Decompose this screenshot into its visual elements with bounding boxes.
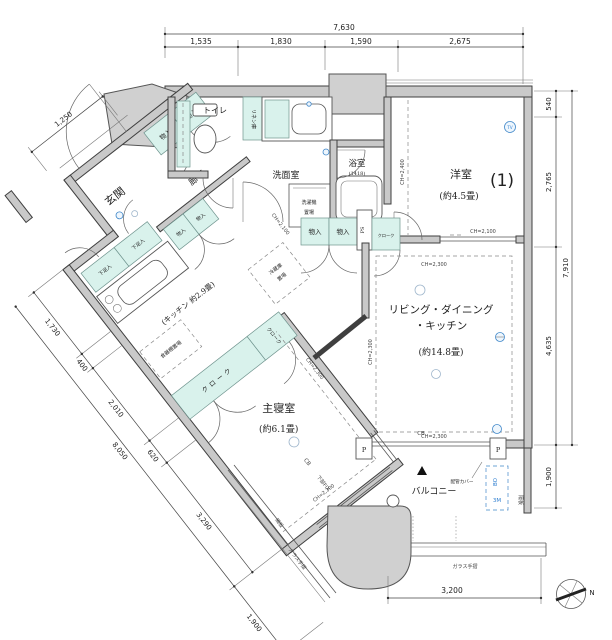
room-senmen-label: 洗面室 (272, 169, 299, 181)
label-washer-2: 置場 (304, 209, 314, 216)
label-bo: BO (493, 477, 499, 486)
floorplan-drawing: 7,630 1,535 1,830 1,590 2,675 540 2,765 … (0, 0, 612, 640)
outlet-icon-2 (493, 425, 502, 434)
room-linen-label: リネン庫 (250, 109, 257, 129)
ps-cloak-strip: 物入 物入 PS クローク (301, 210, 400, 276)
label-ch2100-yoshitsu: CH=2,100 (470, 229, 496, 235)
room-yoshitsu-size: (約4.5畳) (439, 190, 478, 202)
dim-top-2: 1,830 (270, 37, 292, 46)
label-ch2100-kitchen: CH=2,100 (270, 212, 291, 236)
dim-bottom: 3,200 (441, 586, 463, 595)
room-toilet-label: トイレ (203, 106, 227, 115)
room-kitchen: (キッチン 約2.9畳) (159, 279, 217, 327)
room-yoshitsu-number: (1) (490, 171, 514, 191)
compass: N (556, 580, 595, 609)
label-glass-rail-1: ガラス手摺 (453, 563, 478, 570)
room-ldk-label2: ・キッチン (415, 320, 468, 332)
dim-left-total: 8,050 (110, 441, 129, 462)
compass-north: N (589, 589, 594, 597)
room-ldk: CH=2,300 CH=2,300 CH=2,300 リビング・ダイニング ・キ… (314, 243, 524, 475)
shower-icon (323, 149, 329, 155)
planter-hook (387, 495, 399, 507)
label-ch2300-ldk-bottom: CH=2,300 (421, 434, 447, 440)
room-ldk-label1: リビング・ダイニング (389, 303, 494, 316)
room-bath-size: (1418) (349, 170, 366, 177)
label-kakuita-right: 隔板 (517, 495, 524, 505)
label-cb-2: CB (302, 458, 312, 468)
dim-left-3: 2,010 (106, 398, 125, 419)
dim-right: 540 2,765 4,635 7,910 1,900 (534, 90, 578, 509)
dim-right-1: 540 (545, 97, 553, 110)
label-washer-1: 洗濯機 (301, 199, 316, 206)
room-yoshitsu: CH=2,400 CH=2,100 洋室 (約4.5畳) (1) TV (384, 97, 524, 243)
dim-right-2: 2,765 (545, 172, 553, 192)
floorplan-page: 7,630 1,535 1,830 1,590 2,675 540 2,765 … (0, 0, 612, 640)
dim-top-1: 1,535 (190, 37, 212, 46)
dim-right-total: 7,910 (562, 258, 570, 278)
dim-left-top: 1,250 (53, 110, 74, 129)
room-genkan: 玄関 (102, 184, 128, 209)
faucet-icon (307, 102, 311, 106)
right-wall (524, 97, 532, 448)
label-cb-1: CB (417, 431, 425, 437)
dim-top-total: 7,630 (333, 23, 355, 32)
room-ldk-size: (約14.8畳) (418, 346, 463, 358)
room-linen: リネン庫 (243, 97, 262, 140)
dim-left-5: 3,290 (194, 511, 213, 532)
planter (327, 506, 411, 589)
room-toilet: トイレ (168, 97, 233, 208)
dim-left-bottom: 1,900 (245, 613, 264, 634)
dim-right-3: 4,635 (545, 336, 553, 356)
storage-monoire-6: 物入 (337, 227, 351, 236)
label-reizo-2: 置場 (276, 271, 288, 283)
dim-left-1: 1,730 (43, 317, 62, 338)
room-balcony-label: バルコニー (412, 486, 457, 497)
label-haikan: 配管カバー (451, 478, 474, 485)
label-ch2400: CH=2,400 (400, 159, 406, 185)
label-shokki: 食器棚置場 (159, 339, 183, 360)
label-ch2300-ldk-top: CH=2,300 (421, 262, 447, 268)
dim-right-bottom: 1,900 (545, 467, 553, 487)
room-yoshitsu-label: 洋室 (450, 167, 472, 181)
intercom-icon (115, 210, 125, 220)
dim-top-3: 1,590 (350, 37, 372, 46)
label-ps: PS (360, 226, 366, 233)
compass-needle (556, 589, 586, 600)
tv-outlet-label: TV (506, 125, 512, 130)
dim-top-4: 2,675 (449, 37, 471, 46)
room-bedroom-size: (約6.1畳) (259, 423, 298, 435)
label-p-1: P (362, 446, 367, 454)
entry-marker-triangle (417, 466, 427, 475)
label-3m: 3M (493, 498, 501, 504)
structure-column-top (329, 74, 386, 114)
storage-monoire-5: 物入 (309, 227, 323, 236)
label-ch2300-ldk-left: CH=2,300 (368, 339, 374, 365)
label-p-2: P (496, 446, 501, 454)
toilet-bowl (194, 125, 216, 153)
room-bedroom: 主寝室 (262, 401, 295, 415)
